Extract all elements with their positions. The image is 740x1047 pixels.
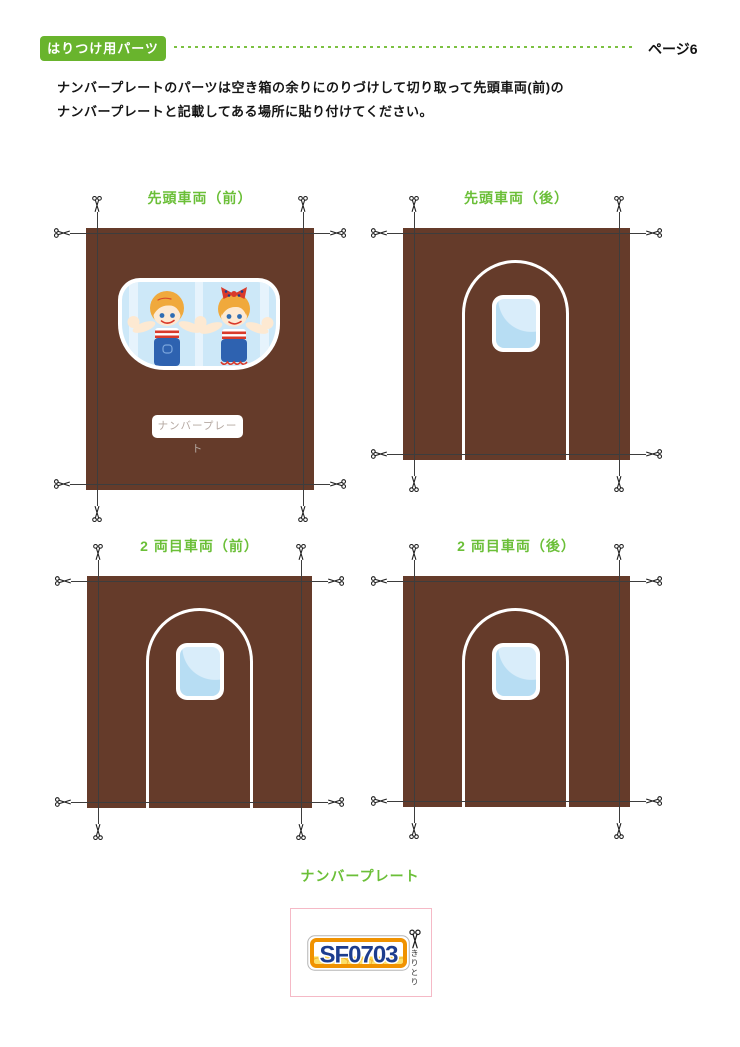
craft-sheet-page: はりつけ用パーツ ページ6 ナンバープレートのパーツは空き箱の余りにのりづけして…	[0, 0, 740, 1047]
plate-number: SF0703	[319, 942, 398, 969]
door-window-glass	[180, 647, 220, 696]
panel-front-car-front: ナンバープレート	[86, 228, 314, 490]
scissors-icon	[54, 479, 71, 489]
cut-line	[97, 212, 98, 506]
cut-line	[98, 560, 99, 824]
cut-line	[301, 560, 302, 824]
scissors-icon	[646, 228, 663, 238]
scissors-icon	[371, 449, 388, 459]
scissors-icon	[330, 228, 347, 238]
front-window-frame	[118, 278, 280, 370]
cut-line	[71, 802, 328, 803]
scissors-icon	[55, 797, 72, 807]
cut-line	[387, 233, 646, 234]
scissors-icon	[646, 796, 663, 806]
panel-title-front-car-front: 先頭車両（前）	[86, 188, 314, 208]
scissors-icon	[296, 544, 306, 561]
cut-line	[414, 560, 415, 823]
scissors-icon	[330, 479, 347, 489]
scissors-icon	[296, 824, 306, 841]
panel-second-car-rear	[403, 576, 630, 807]
door-window	[492, 295, 540, 352]
scissors-icon	[409, 929, 421, 949]
scissors-icon	[93, 544, 103, 561]
scissors-icon	[298, 506, 308, 523]
cut-line	[71, 581, 328, 582]
scissors-icon	[55, 576, 72, 586]
door-window	[492, 643, 540, 700]
kids-illustration	[122, 282, 276, 366]
cut-line	[70, 484, 330, 485]
scissors-icon	[614, 823, 624, 840]
scissors-icon	[54, 228, 71, 238]
plate-placeholder-label: ナンバープレート	[152, 415, 243, 438]
panel-title-second-car-rear: 2 両目車両（後）	[403, 536, 630, 556]
door-outline	[462, 260, 569, 461]
cut-line	[619, 560, 620, 823]
door-window	[176, 643, 224, 700]
scissors-icon	[328, 797, 345, 807]
scissors-icon	[371, 576, 388, 586]
scissors-icon	[298, 196, 308, 213]
scissors-icon	[371, 228, 388, 238]
cut-line	[619, 212, 620, 476]
page-number: ページ6	[648, 39, 698, 59]
cut-line	[414, 212, 415, 476]
cut-label: きりとり	[409, 949, 420, 987]
scissors-icon	[92, 506, 102, 523]
plate-section-label: ナンバープレート	[260, 866, 460, 886]
scissors-icon	[614, 196, 624, 213]
scissors-icon	[371, 796, 388, 806]
section-badge: はりつけ用パーツ	[40, 36, 166, 61]
cut-line	[387, 454, 646, 455]
dashed-divider	[174, 46, 636, 48]
door-window-glass	[496, 299, 536, 348]
number-plate: SF0703	[307, 935, 410, 971]
scissors-icon	[328, 576, 345, 586]
instruction-text: ナンバープレートのパーツは空き箱の余りにのりづけして切り取って先頭車両(前)の …	[57, 76, 564, 124]
instruction-line-1: ナンバープレートのパーツは空き箱の余りにのりづけして切り取って先頭車両(前)の	[57, 76, 564, 100]
panel-front-car-rear	[403, 228, 630, 460]
panel-second-car-front	[87, 576, 312, 808]
scissors-icon	[93, 824, 103, 841]
panel-title-second-car-front: 2 両目車両（前）	[87, 536, 312, 556]
scissors-icon	[409, 823, 419, 840]
scissors-icon	[646, 576, 663, 586]
scissors-icon	[614, 544, 624, 561]
cut-line	[70, 233, 330, 234]
scissors-icon	[92, 196, 102, 213]
scissors-icon	[409, 476, 419, 493]
cut-line	[303, 212, 304, 506]
door-outline	[462, 608, 569, 808]
instruction-line-2: ナンバープレートと記載してある場所に貼り付けてください。	[57, 100, 564, 124]
cut-line	[387, 581, 646, 582]
door-outline	[146, 608, 253, 809]
scissors-icon	[614, 476, 624, 493]
scissors-icon	[409, 544, 419, 561]
scissors-icon	[646, 449, 663, 459]
door-window-glass	[496, 647, 536, 696]
scissors-icon	[409, 196, 419, 213]
cut-line	[387, 801, 646, 802]
plate-cutout-box: SF0703 きりとり	[290, 908, 432, 997]
panel-title-front-car-rear: 先頭車両（後）	[403, 188, 630, 208]
